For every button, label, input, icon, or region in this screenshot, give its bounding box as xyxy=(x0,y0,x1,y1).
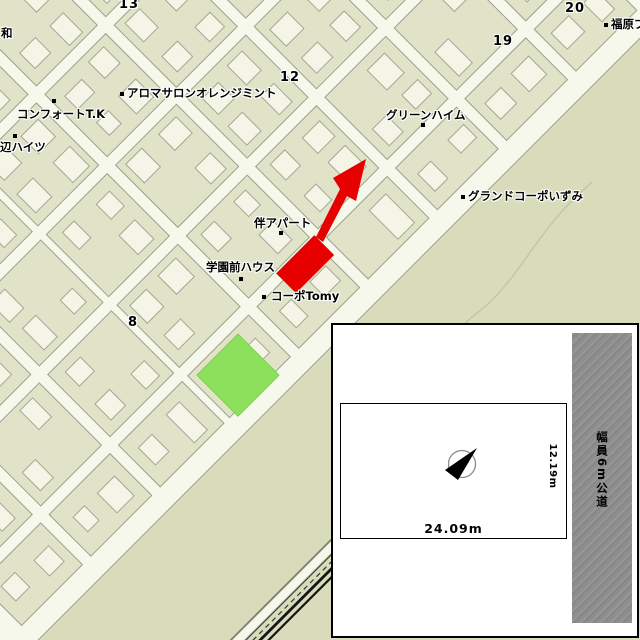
map-label-gakuenmae: 学園前ハウス xyxy=(206,261,275,274)
map-label-marker xyxy=(604,23,608,27)
inset-diagram: 幅員6m公道 24.09m 12.19m xyxy=(331,323,639,638)
block-number-8: 8 xyxy=(128,316,138,330)
frontage-dimension-label: 24.09m xyxy=(341,521,566,536)
map-label-fukuhara: 福原プ xyxy=(611,18,640,31)
block-number-20: 20 xyxy=(565,2,585,16)
map-label-greenheim: グリーンハイム xyxy=(386,109,465,122)
road-strip: 幅員6m公道 xyxy=(572,333,632,623)
parcel-outline: 24.09m 12.19m xyxy=(340,403,567,539)
map-label-marker xyxy=(120,92,124,96)
map-label-marker xyxy=(52,99,56,103)
block-number-12: 12 xyxy=(280,71,300,85)
map-label-comfort: コンフォートT.K xyxy=(17,108,105,121)
map-canvas: 和コンフォートT.K辺ハイツアロマサロンオレンジミントグリーンハイム福原プグラン… xyxy=(0,0,640,640)
block-number-13: 13 xyxy=(119,0,139,12)
map-label-aroma: アロマサロンオレンジミント xyxy=(127,87,277,100)
compass-icon xyxy=(444,445,482,483)
map-label-grandcorpo: グランドコーポいずみ xyxy=(468,190,583,203)
map-label-banapart: 伴アパート xyxy=(254,217,311,230)
map-label-corpotomy: コーポTomy xyxy=(271,290,339,303)
map-label-marker xyxy=(239,277,243,281)
map-label-marker xyxy=(461,195,465,199)
map-label-heights: 辺ハイツ xyxy=(0,141,46,154)
road-width-label: 幅員6m公道 xyxy=(594,431,610,509)
block-number-19: 19 xyxy=(493,35,513,49)
map-label-marker xyxy=(279,231,283,235)
map-label-marker xyxy=(421,123,425,127)
map-label-marker xyxy=(262,295,266,299)
side-dimension-label: 12.19m xyxy=(546,443,558,489)
map-label-marker xyxy=(13,134,17,138)
map-label-wa: 和 xyxy=(1,27,13,40)
